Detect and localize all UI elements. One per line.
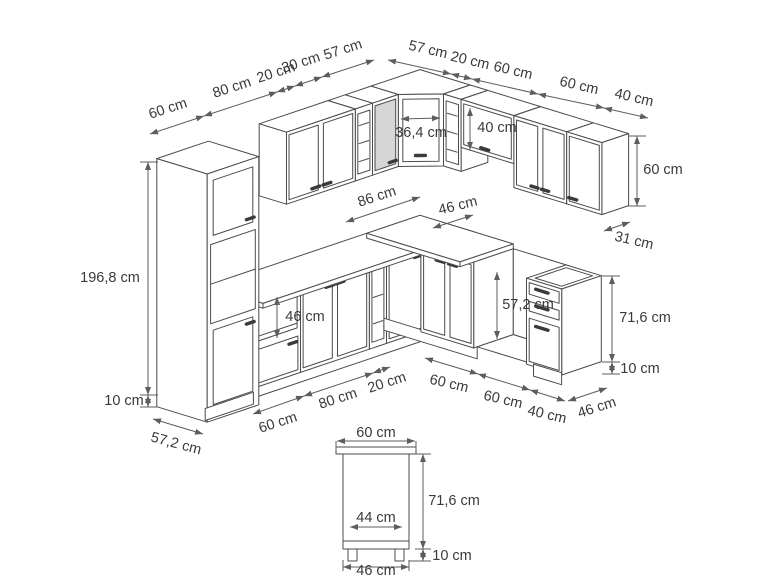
dimension-line: [530, 390, 565, 401]
dim-label-corner-width: 36,4 cm: [395, 125, 447, 141]
dim-label-detail-plinth-10: 10 cm: [432, 548, 472, 564]
detail-leg: [395, 549, 404, 561]
dim-label-drawer-plinth: 10 cm: [620, 361, 660, 377]
door-panel: [529, 318, 559, 370]
door-panel: [450, 258, 471, 343]
door-handle: [569, 198, 577, 200]
door-panel: [372, 264, 384, 342]
door-handle: [531, 186, 538, 188]
door-handle: [542, 189, 549, 191]
dimension-line: [277, 86, 295, 92]
dim-label-appliance-niche: 57,2 cm: [502, 297, 554, 313]
dimension-line: [295, 77, 322, 86]
dimension-line: [604, 108, 648, 118]
door-panel: [213, 317, 253, 405]
kitchen-dimension-diagram: 60 cm80 cm20 cm30 cm57 cm57 cm20 cm60 cm…: [0, 0, 770, 578]
dimension-line: [373, 367, 390, 373]
cabinet-geometry: [157, 70, 629, 561]
dim-label-tall-height: 196,8 cm: [80, 270, 140, 286]
dim-label-tall-plinth: 10 cm: [104, 393, 144, 409]
dimension-line: [451, 74, 472, 79]
kitchen-line-drawing: [0, 0, 770, 578]
dim-label-detail-bottom-46: 46 cm: [356, 563, 396, 578]
tall-cabinet-side: [157, 159, 207, 423]
dim-label-detail-inner-44: 44 cm: [356, 510, 396, 526]
dim-label-drawer-height: 71,6 cm: [619, 310, 671, 326]
detail-body: [343, 454, 409, 549]
wall-cabinet-40-right-side: [602, 134, 629, 215]
detail-leg: [348, 549, 357, 561]
door-handle: [389, 160, 396, 162]
dim-label-wall-right-height: 60 cm: [643, 162, 683, 178]
dim-label-oven-niche: 46 cm: [285, 309, 325, 325]
dimension-line: [253, 396, 304, 414]
door-panel: [543, 128, 564, 199]
wall-cabinet-80-side: [259, 124, 286, 204]
detail-countertop: [336, 447, 416, 454]
dim-label-detail-top-60: 60 cm: [356, 425, 396, 441]
dim-label-hood-cab-height: 40 cm: [477, 120, 517, 136]
drawer-base-cabinet-side: [562, 276, 602, 375]
dim-label-detail-height: 71,6 cm: [428, 493, 480, 509]
door-panel: [323, 114, 352, 189]
door-handle: [481, 148, 489, 150]
door-panel: [517, 120, 538, 191]
